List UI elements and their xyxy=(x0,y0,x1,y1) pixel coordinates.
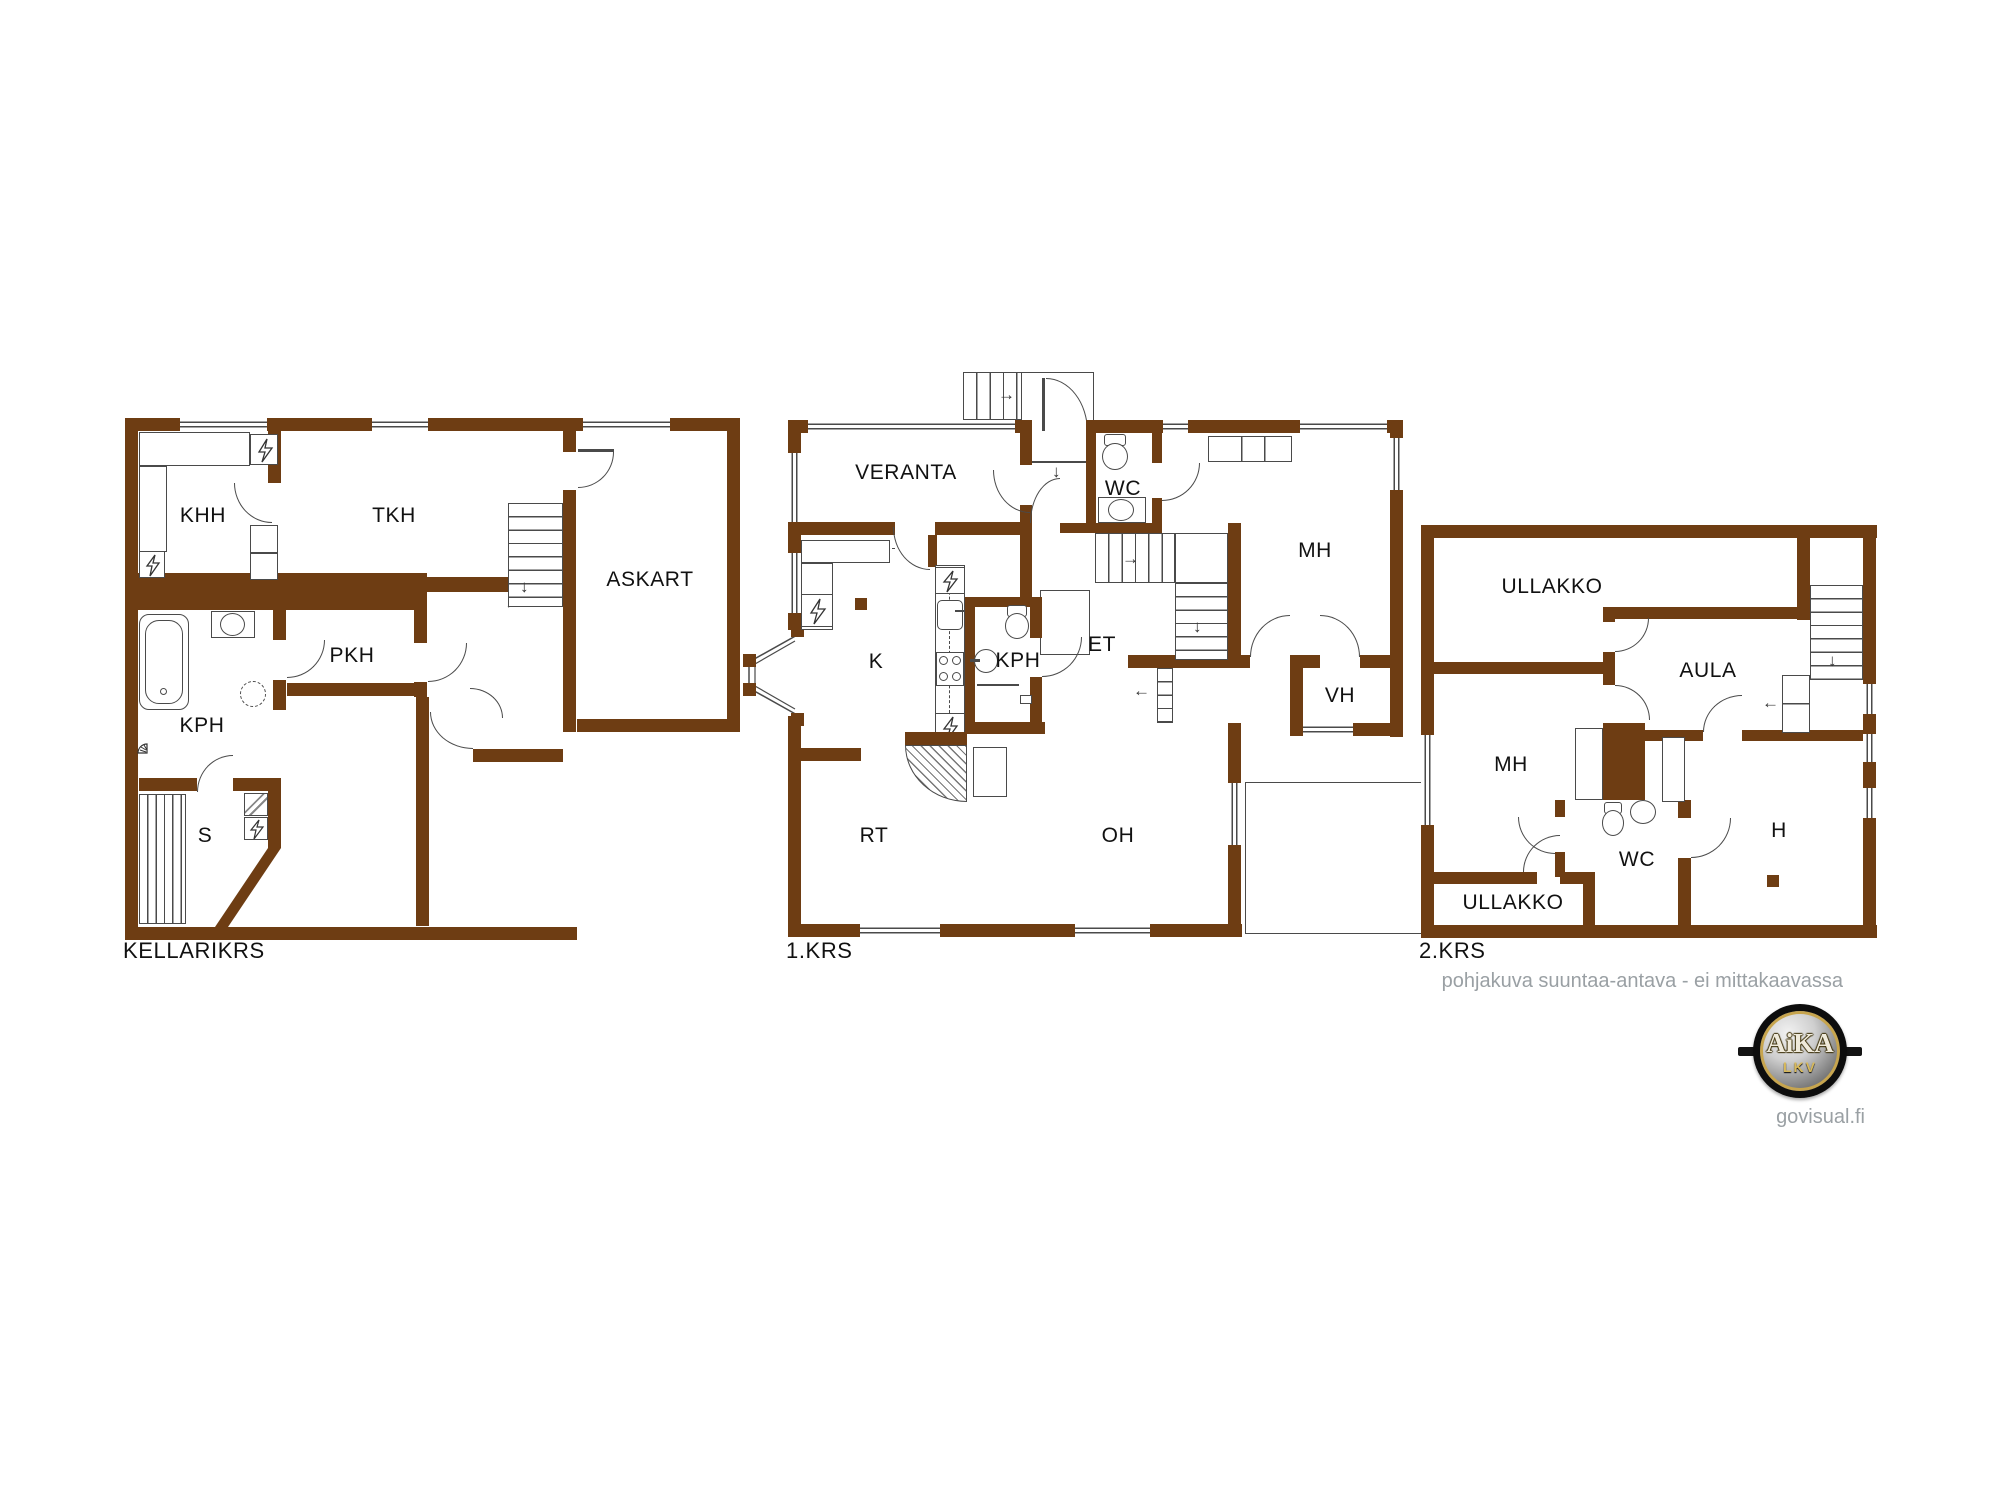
wall xyxy=(1020,428,1032,465)
electric-box xyxy=(801,594,833,627)
room-label-ullakko-bottom: ULLAKKO xyxy=(1462,891,1563,915)
wall xyxy=(1290,655,1320,668)
burner xyxy=(952,672,961,681)
wall xyxy=(1390,490,1403,737)
toilet-bowl xyxy=(1602,810,1624,836)
room-label-kph: KPH xyxy=(996,649,1041,673)
hearth xyxy=(973,747,1007,797)
wall xyxy=(1390,420,1403,438)
floor-title-first: 1.KRS xyxy=(786,938,853,964)
stairs-down xyxy=(1810,585,1863,680)
wall xyxy=(1678,858,1691,925)
wall xyxy=(965,722,1045,734)
wall xyxy=(1290,668,1303,723)
wall xyxy=(1060,523,1086,533)
sink-bowl xyxy=(1630,800,1656,824)
wall xyxy=(1152,420,1162,463)
wall xyxy=(1863,525,1876,938)
chimney-pillar xyxy=(855,598,867,610)
logo-brand-sub: LKV xyxy=(1760,1059,1840,1075)
toilet xyxy=(1600,802,1624,834)
logo-brand-name: AiKA xyxy=(1760,1028,1840,1059)
window xyxy=(1421,735,1434,825)
burner xyxy=(939,672,948,681)
wall xyxy=(1290,723,1303,736)
electric-icon xyxy=(802,595,834,628)
wall xyxy=(788,924,860,937)
electric-box xyxy=(935,567,965,594)
fireplace-wall xyxy=(905,732,967,745)
room-label-ullakko-top: ULLAKKO xyxy=(1501,575,1602,599)
website-text: govisual.fi xyxy=(1776,1106,1865,1129)
wardrobe xyxy=(1662,737,1685,802)
burner xyxy=(952,656,961,665)
wall xyxy=(1603,607,1615,622)
room-label-wc: WC xyxy=(1619,848,1655,872)
terrace-outline xyxy=(1245,782,1433,934)
room-label-rt: RT xyxy=(860,824,889,848)
bay-post xyxy=(791,713,804,726)
toilet xyxy=(1100,434,1128,468)
stair-landing xyxy=(1175,533,1228,583)
window xyxy=(1228,783,1241,845)
window xyxy=(1863,734,1876,762)
wall xyxy=(1353,723,1403,736)
logo-badge: AiKA LKV xyxy=(1753,1004,1847,1098)
wall xyxy=(801,748,861,761)
towel-rail xyxy=(977,684,1019,686)
toilet-bowl xyxy=(1102,443,1128,470)
wall xyxy=(1797,525,1810,620)
toilet-bowl xyxy=(1005,613,1029,639)
chimney xyxy=(1603,723,1645,800)
stair-direction-arrow: → xyxy=(1122,550,1139,567)
wall xyxy=(1086,420,1096,523)
wall xyxy=(940,924,1075,937)
room-label-oh: OH xyxy=(1102,824,1135,848)
wall xyxy=(1555,800,1565,817)
burner xyxy=(939,656,948,665)
pillar xyxy=(1767,875,1779,887)
stairs-to-basement xyxy=(1157,668,1173,723)
wall xyxy=(1228,845,1241,937)
wall xyxy=(1421,925,1877,938)
floorplan-canvas: ↓ KHH xyxy=(0,0,2000,1500)
bay-post xyxy=(743,683,756,696)
room-label-h: H xyxy=(1771,819,1787,843)
wall xyxy=(1421,662,1607,674)
wall xyxy=(1603,652,1615,685)
wardrobe xyxy=(1208,436,1292,462)
room-label-mh: MH xyxy=(1298,539,1332,563)
room-label-k: K xyxy=(869,650,884,674)
disclaimer-text: pohjakuva suuntaa-antava - ei mittakaava… xyxy=(1442,970,1843,993)
kitchen-sink xyxy=(937,600,963,630)
window xyxy=(1303,723,1353,736)
wall xyxy=(1030,597,1042,638)
room-label-aula: AULA xyxy=(1679,659,1736,683)
bay-post xyxy=(743,654,756,667)
wall xyxy=(1360,655,1403,668)
room-label-et: ET xyxy=(1088,633,1116,657)
window xyxy=(860,924,940,937)
window xyxy=(1863,788,1876,818)
toilet xyxy=(1003,605,1029,637)
stair-closet xyxy=(1782,675,1810,733)
stair-direction-arrow: ↓ xyxy=(1828,652,1837,669)
room-label-veranta: VERANTA xyxy=(855,461,957,485)
stair-direction-arrow: ← xyxy=(1133,682,1150,699)
shower-mixer-handle xyxy=(970,659,980,662)
electric-icon xyxy=(936,568,966,595)
window xyxy=(1075,924,1150,937)
room-label-wc: WC xyxy=(1105,477,1141,501)
room-label-mh: MH xyxy=(1494,753,1528,777)
wall xyxy=(1421,872,1537,884)
kitchen-counter xyxy=(801,540,890,563)
wardrobe xyxy=(1575,728,1603,800)
floor-title-second: 2.KRS xyxy=(1419,938,1486,964)
stair-direction-arrow: ↓ xyxy=(1193,618,1202,635)
faucet xyxy=(955,610,964,612)
wall xyxy=(1583,877,1595,925)
wall xyxy=(1085,523,1162,533)
window xyxy=(1390,438,1403,490)
wall xyxy=(1228,723,1241,783)
wall xyxy=(1678,800,1691,818)
wall xyxy=(1228,523,1241,668)
stair-direction-arrow: ← xyxy=(1762,694,1779,711)
wall xyxy=(935,522,1020,535)
sink-bowl xyxy=(1108,499,1134,521)
wall xyxy=(801,522,895,535)
wall xyxy=(928,535,937,567)
wall xyxy=(1152,498,1162,533)
stairs-down xyxy=(1175,583,1228,660)
floor-drain xyxy=(1020,695,1032,704)
window xyxy=(1863,684,1876,714)
room-label-vh: VH xyxy=(1325,684,1355,708)
